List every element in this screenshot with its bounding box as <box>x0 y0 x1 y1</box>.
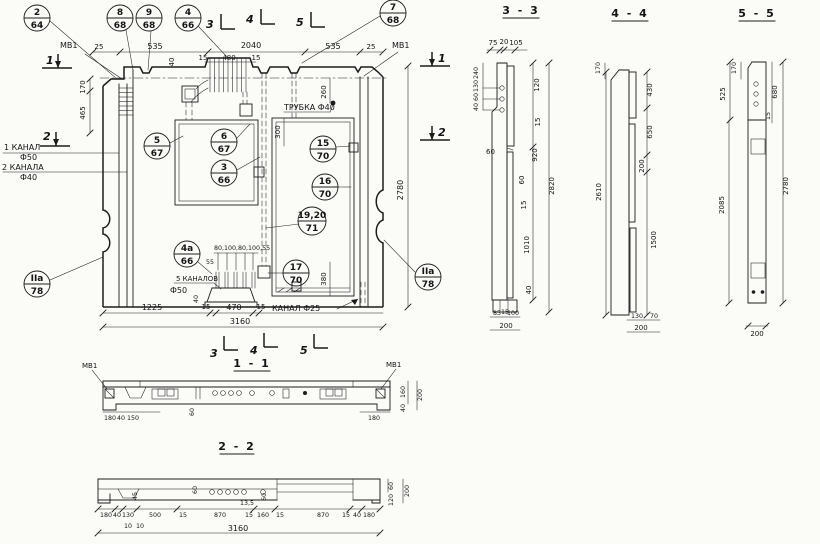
dim-20: 20 <box>500 38 509 46</box>
callout-den: 67 <box>151 149 164 159</box>
callout-num: 9 <box>146 8 152 18</box>
section-2-2-dims: 45 60 13,5 60 180 40 130 500 15 870 15 1… <box>95 479 411 536</box>
callout-den: 78 <box>422 280 435 290</box>
dim-480: 480 <box>222 54 235 62</box>
callout-den: 67 <box>218 145 231 155</box>
dim-680: 680 <box>771 85 779 98</box>
dim-40-foot: 40 <box>193 295 200 303</box>
callout-num: IIа <box>422 267 435 277</box>
dim-200-s33: 200 <box>499 322 512 330</box>
dim-40-s11-b: 40 <box>400 404 407 412</box>
callout-8-68: 8 68 <box>107 5 133 70</box>
dim-2780-s55: 2780 <box>782 177 790 195</box>
callout-num: 4а <box>181 244 193 254</box>
dim-70: 70 <box>650 313 658 320</box>
dim-40-s11: 40 <box>117 415 125 422</box>
dim-15-d: 15 <box>257 303 266 311</box>
section-4-4: 4 - 4 170 430 650 200 1500 2610 130 70 2… <box>595 7 660 332</box>
dim-15-b: 15 <box>252 54 261 62</box>
dim-60-left: 60 <box>486 148 495 156</box>
section-2-2-title: 2 - 2 <box>218 440 256 453</box>
dim-2610: 2610 <box>595 183 603 201</box>
dim-25-right: 25 <box>367 43 376 51</box>
dim-200-s11: 200 <box>417 389 424 401</box>
callout-den: 68 <box>114 21 127 31</box>
dim-40-s33: 40 <box>525 286 533 295</box>
callout-7-68: 7 68 <box>302 0 406 63</box>
callout-num: 17 <box>290 263 303 273</box>
dim-180-left: 180 <box>104 415 116 422</box>
dim-row-7: 160 <box>257 512 269 519</box>
dim-60-stack: 60 <box>473 93 480 101</box>
callout-19-20-71: 19,20 71 <box>266 207 326 235</box>
dim-2820: 2820 <box>548 177 556 195</box>
dim-60-s11: 60 <box>189 408 196 416</box>
callout-16-70: 16 70 <box>312 174 351 200</box>
dim-40-top: 40 <box>168 58 176 67</box>
marker-4-top: 4 <box>245 13 254 26</box>
section-5-5-body <box>748 120 766 303</box>
dim-60-inner: 60 <box>518 176 526 185</box>
section-3-3-wall <box>492 63 507 300</box>
callout-num: 7 <box>390 3 396 13</box>
dim-650: 650 <box>646 125 654 138</box>
dim-470: 470 <box>226 303 241 312</box>
dim-260: 260 <box>320 85 328 98</box>
callout-den: 64 <box>31 21 44 31</box>
callout-num: 4 <box>185 8 191 18</box>
callout-6-67: 6 67 <box>211 124 250 155</box>
dim-mv1-left: МВ1 <box>60 41 77 50</box>
callout-num: 16 <box>319 177 332 187</box>
dim-200-s44-total: 200 <box>634 324 647 332</box>
callout-9-68: 9 68 <box>136 5 162 70</box>
label-f50-foot: Ф50 <box>170 286 187 295</box>
bottom-dimensions: 1225 15 470 15 КАНАЛ Ф25 3160 <box>100 299 386 330</box>
main-view: 2 64 8 68 9 68 4 66 7 68 5 67 6 67 3 66 … <box>2 0 450 360</box>
section-3-3-title: 3 - 3 <box>502 4 540 17</box>
dim-920: 920 <box>531 148 539 161</box>
dim-150: 150 <box>127 415 139 422</box>
dim-15-s33a: 15 <box>534 118 542 127</box>
callout-IIa-78-right: IIа 78 <box>384 240 441 290</box>
marker-3-top: 3 <box>206 18 214 31</box>
dim-120: 120 <box>533 78 541 91</box>
dim-380: 380 <box>320 272 328 285</box>
callout-den: 70 <box>319 190 332 200</box>
dim-row-4: 15 <box>179 512 187 519</box>
callout-den: 78 <box>31 287 44 297</box>
dim-10-a: 10 <box>124 523 132 530</box>
dim-535-right: 535 <box>325 42 340 51</box>
section-3-3-dims: 75 20 105 240 130 60 40 120 15 920 60 60… <box>473 38 556 330</box>
dim-40-stack: 40 <box>473 103 480 111</box>
dim-row-10: 15 <box>342 512 350 519</box>
section-1-1: 1 - 1 МВ1 МВ1 180 40 150 60 180 160 200 … <box>82 357 424 422</box>
callout-den: 68 <box>387 16 400 26</box>
dim-200-s55: 200 <box>750 330 763 338</box>
dim-row-6: 15 <box>245 512 253 519</box>
dim-10-b: 10 <box>136 523 144 530</box>
section-2-2: 2 - 2 45 60 13,5 60 180 40 130 500 15 87… <box>95 440 411 536</box>
dim-300: 300 <box>274 125 282 138</box>
label-mv1-right: МВ1 <box>386 361 401 369</box>
dim-25-left: 25 <box>95 43 104 51</box>
hidden-channel-lines <box>186 73 365 307</box>
callout-num: 15 <box>317 139 330 149</box>
label-f40: Ф40 <box>20 173 37 182</box>
callout-den: 70 <box>290 276 303 286</box>
top-channel-fan <box>191 58 246 102</box>
label-trubka-f40: ТРУБКА Ф40 <box>283 103 335 112</box>
dim-row-11: 40 <box>353 512 361 519</box>
marker-1-right: 1 <box>438 52 446 65</box>
dim-13-5: 13,5 <box>240 500 254 507</box>
label-kanal-f25: КАНАЛ Ф25 <box>272 304 320 313</box>
left-dimensions: 170 465 <box>79 76 93 136</box>
dim-2780: 2780 <box>396 180 405 200</box>
dim-130-s44: 130 <box>631 313 643 320</box>
dim-15-c: 15 <box>202 303 211 311</box>
dim-535-left: 535 <box>147 42 162 51</box>
callout-15-70: 15 70 <box>310 136 350 162</box>
dim-200-s22: 200 <box>404 485 411 497</box>
top-dimensions: МВ1 25 535 2040 535 25 МВ1 15 480 15 40 <box>60 41 409 79</box>
dim-row-80-100: 80,100,80,100,55 <box>214 245 270 252</box>
label-5-kanalov: 5 КАНАЛОВ <box>176 275 218 283</box>
marker-3-bottom: 3 <box>210 347 218 360</box>
dim-240: 240 <box>473 67 480 79</box>
callout-num: 5 <box>154 136 160 146</box>
dim-200-s44: 200 <box>638 159 646 172</box>
dim-15-s55: 15 <box>765 112 772 120</box>
section-3-3: 3 - 3 75 20 105 240 130 60 40 120 15 920… <box>473 4 556 330</box>
section-2-2-body <box>98 479 380 503</box>
dim-120-s22: 120 <box>388 494 395 506</box>
label-mv1-left: МВ1 <box>82 362 97 370</box>
dim-130: 130 <box>473 80 480 92</box>
dim-row-8: 15 <box>276 512 284 519</box>
dim-row-1: 40 <box>113 512 121 519</box>
callout-num: IIа <box>31 274 44 284</box>
left-end-rib <box>119 70 133 307</box>
callout-den: 66 <box>218 176 231 186</box>
dim-100: 100 <box>507 310 519 317</box>
dim-3160: 3160 <box>230 317 250 326</box>
section-4-4-wall <box>611 70 629 315</box>
right-end-rib <box>360 77 368 307</box>
callout-den: 66 <box>181 257 194 267</box>
section-5-5-title: 5 - 5 <box>738 7 776 20</box>
dim-15-a: 15 <box>199 54 208 62</box>
dim-2085: 2085 <box>718 196 726 214</box>
section-5-5: 5 - 5 170 525 680 15 2085 2780 200 <box>718 7 790 338</box>
dim-55: 55 <box>206 259 214 266</box>
callout-3-66: 3 66 <box>211 157 260 186</box>
dim-row-5: 870 <box>214 512 226 519</box>
callout-den: 70 <box>317 152 330 162</box>
dim-75: 75 <box>489 39 498 47</box>
dim-525: 525 <box>719 87 727 100</box>
marker-4-bottom: 4 <box>249 344 258 357</box>
callout-den: 71 <box>306 224 319 234</box>
callout-num: 19,20 <box>298 211 326 221</box>
dim-row-0: 180 <box>100 512 112 519</box>
dim-60-s22r: 60 <box>388 482 395 490</box>
label-f50: Ф50 <box>20 153 37 162</box>
marker-2-right: 2 <box>438 126 446 139</box>
dim-85: 85 <box>493 310 501 317</box>
dim-2040: 2040 <box>241 41 261 50</box>
dim-row-3: 500 <box>149 512 161 519</box>
marker-2-left: 2 <box>43 130 51 143</box>
section-1-1-body <box>103 381 390 410</box>
right-dimension-2780: 2780 <box>396 63 411 310</box>
section-1-1-title: 1 - 1 <box>233 357 271 370</box>
dim-180-right: 180 <box>368 415 380 422</box>
dim-mv1-right: МВ1 <box>392 41 409 50</box>
dim-row-12: 180 <box>363 512 375 519</box>
callout-num: 8 <box>117 8 123 18</box>
label-2-kanala: 2 КАНАЛА <box>2 163 44 172</box>
callout-5-67: 5 67 <box>144 133 183 159</box>
callout-den: 66 <box>182 21 195 31</box>
panel-working-drawing: 2 64 8 68 9 68 4 66 7 68 5 67 6 67 3 66 … <box>0 0 820 544</box>
callout-num: 3 <box>221 163 227 173</box>
marker-1-left: 1 <box>46 54 54 67</box>
dim-160: 160 <box>400 386 407 398</box>
callout-4-66: 4 66 <box>175 5 228 58</box>
callout-den: 68 <box>143 21 156 31</box>
dim-45: 45 <box>132 492 139 500</box>
dim-105: 105 <box>509 39 522 47</box>
callout-4a-66: 4а 66 <box>174 241 212 274</box>
dim-465: 465 <box>79 106 87 119</box>
section-4-4-dims: 170 430 650 200 1500 2610 130 70 200 <box>595 62 660 332</box>
section-4-4-title: 4 - 4 <box>611 7 649 20</box>
dim-row-2: 130 <box>122 512 134 519</box>
dim-170-s44: 170 <box>595 62 602 74</box>
dim-170-s55: 170 <box>731 62 738 74</box>
callout-17-70: 17 70 <box>268 260 309 286</box>
blueprint-canvas: 2 64 8 68 9 68 4 66 7 68 5 67 6 67 3 66 … <box>0 0 820 544</box>
callout-num: 2 <box>34 8 40 18</box>
dim-430: 430 <box>646 83 654 96</box>
section-5-5-dims: 170 525 680 15 2085 2780 200 <box>718 59 790 338</box>
marker-5-bottom: 5 <box>300 344 308 357</box>
dim-60-s22a: 60 <box>192 486 199 494</box>
dim-1010: 1010 <box>523 236 531 254</box>
dim-60-s22b: 60 <box>261 493 268 501</box>
callout-num: 6 <box>221 132 227 142</box>
dim-170: 170 <box>79 80 87 93</box>
dim-1225: 1225 <box>142 303 162 312</box>
callout-IIa-78-left: IIа 78 <box>24 257 103 297</box>
label-1-kanal: 1 КАНАЛ <box>4 143 40 152</box>
marker-5-top: 5 <box>296 16 304 29</box>
dim-row-9: 870 <box>317 512 329 519</box>
dim-15-s33b: 15 <box>520 201 528 210</box>
dim-3160-s22: 3160 <box>228 524 248 533</box>
section-5-5-head <box>748 62 766 120</box>
dim-1500: 1500 <box>650 231 658 249</box>
